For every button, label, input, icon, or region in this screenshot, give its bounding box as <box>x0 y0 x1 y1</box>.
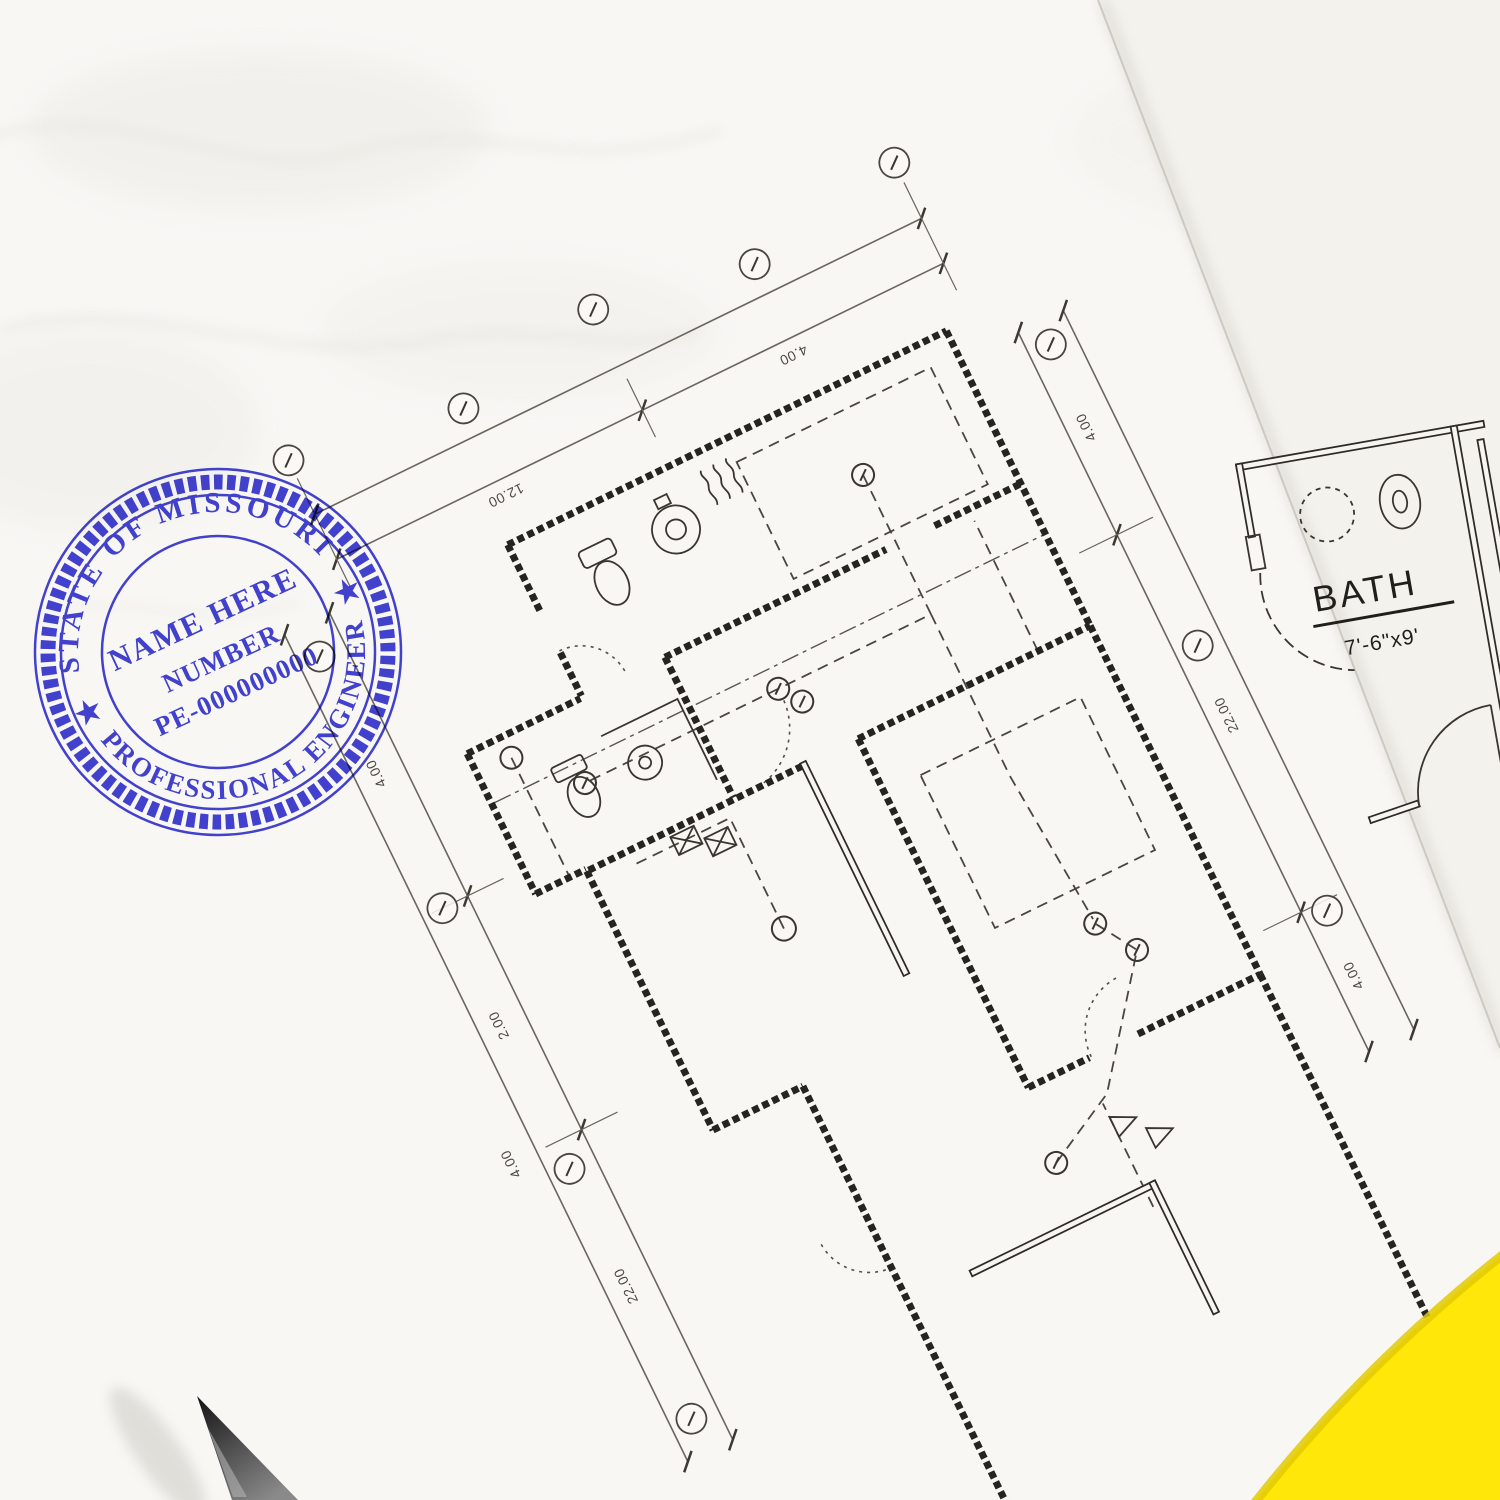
blueprint-product-photo: BATH 7'-6"x9' <box>0 0 1500 1500</box>
photo-scene: BATH 7'-6"x9' <box>0 0 1500 1500</box>
